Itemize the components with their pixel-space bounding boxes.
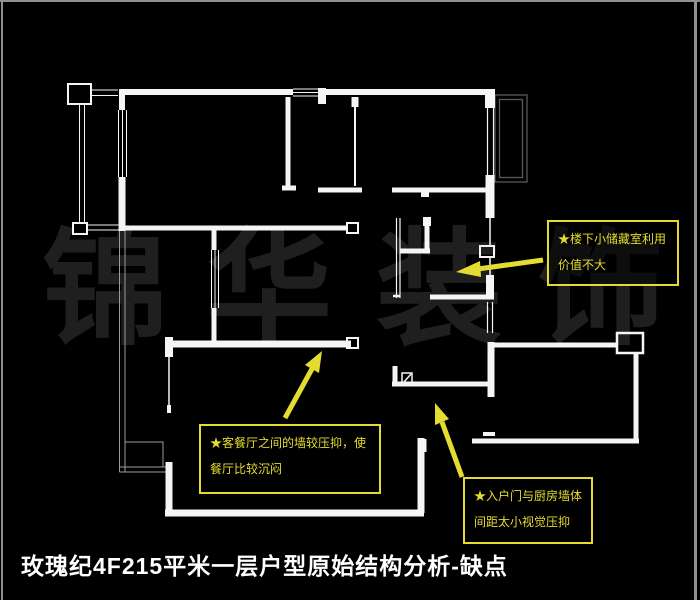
annotation-text: ★楼下小储藏室利用	[558, 226, 668, 252]
annotation-box-storage: ★楼下小储藏室利用 价值不大	[547, 220, 679, 286]
annotation-box-entry-door: ★入户门与厨房墙体 间距太小视觉压抑	[463, 477, 593, 544]
annotation-text: 间距太小视觉压抑	[474, 509, 582, 535]
arrow-storage	[456, 260, 543, 277]
annotation-text: ★客餐厅之间的墙较压抑，使	[210, 430, 370, 456]
arrow-entry-door	[435, 403, 462, 477]
page-title: 玫瑰纪4F215平米一层户型原始结构分析-缺点	[21, 547, 508, 581]
annotation-box-dining-wall: ★客餐厅之间的墙较压抑，使 餐厅比较沉闷	[199, 424, 381, 494]
annotation-text: 价值不大	[558, 252, 668, 278]
annotation-text: 餐厅比较沉闷	[210, 456, 370, 482]
floor-plan-analysis-image: 锦 华 装 饰	[0, 0, 700, 600]
floor-plan-drawing	[0, 0, 700, 600]
balcony-top-right	[495, 95, 527, 182]
arrow-dining-wall	[285, 351, 322, 418]
balcony-left	[120, 231, 169, 472]
annotation-text: ★入户门与厨房墙体	[474, 483, 582, 509]
